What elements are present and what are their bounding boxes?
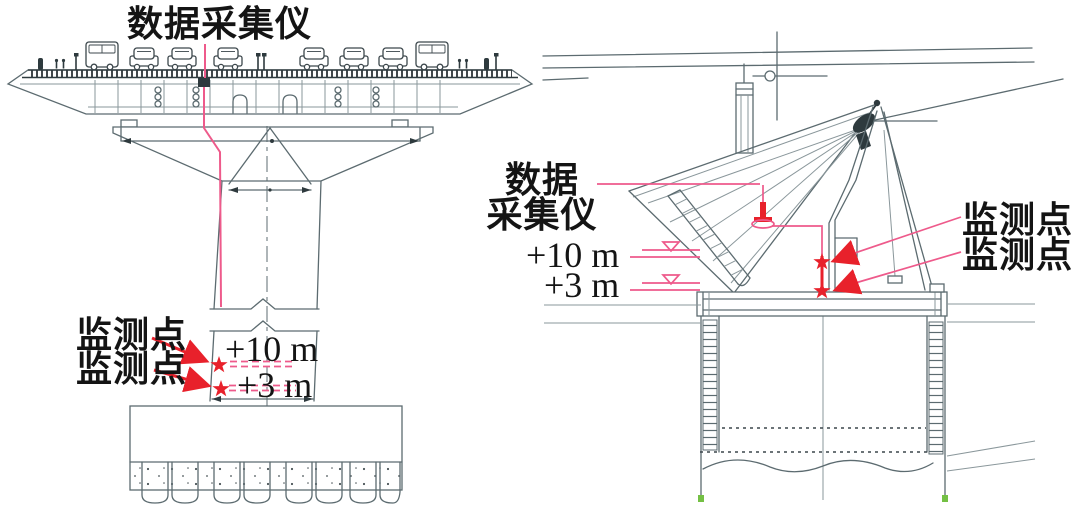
inclined-ladder [668, 190, 750, 286]
beam-end-step [930, 284, 944, 292]
monitor-leader-2 [845, 252, 961, 286]
left-daq-label: 数据采集仪 [127, 6, 312, 42]
left-monitor-label-2: 监测点 [76, 351, 187, 387]
deck-edge-lines [543, 48, 1034, 80]
pile-tip-right [942, 495, 948, 502]
backstay-line [866, 79, 1063, 122]
monitor-leader-1 [843, 217, 961, 257]
ground-lines [544, 304, 1035, 471]
sheave-cluster [849, 100, 880, 150]
pile-cap-foundation [130, 406, 402, 503]
left-elevation-plus10: +10 m [225, 331, 318, 367]
survey-crosshair [753, 32, 827, 120]
monitor-arrow-2 [838, 283, 854, 289]
right-elevation-plus3: +3 m [544, 267, 619, 303]
break-line-upper [210, 299, 319, 309]
leg-foot [888, 276, 902, 283]
sensor-body [760, 202, 766, 218]
monitoring-point-star-2 [212, 380, 229, 396]
left-monitor-label-1: 监测点 [76, 317, 187, 353]
mud-line [703, 460, 933, 472]
deck-vehicles [38, 42, 499, 70]
water-level-marks [630, 242, 700, 290]
cap-dimension-line [229, 187, 311, 193]
bridge-deck [8, 70, 532, 114]
sensor-wire [772, 226, 822, 256]
left-elevation-view [8, 42, 532, 503]
cables [648, 127, 864, 283]
right-daq-label-line1: 数据 [486, 162, 598, 198]
right-monitor-label-2: 监测点 [962, 237, 1073, 273]
right-daq-label-line2: 采集仪 [486, 197, 598, 233]
daq-instrument-box [198, 78, 210, 87]
caisson [544, 284, 1035, 502]
pile-tip-left [698, 495, 704, 502]
tower-legs [829, 107, 933, 290]
left-elevation-plus3: +3 m [237, 367, 312, 403]
pier-cap [113, 120, 433, 193]
monitor-arrow-1 [836, 254, 852, 260]
pylon-post [736, 64, 753, 153]
right-monitor-label-1: 监测点 [962, 202, 1073, 238]
figure-bridge-monitoring-diagram: 数据采集仪 监测点 监测点 +10 m +3 m 数据 采集仪 +10 m +3… [0, 0, 1080, 508]
